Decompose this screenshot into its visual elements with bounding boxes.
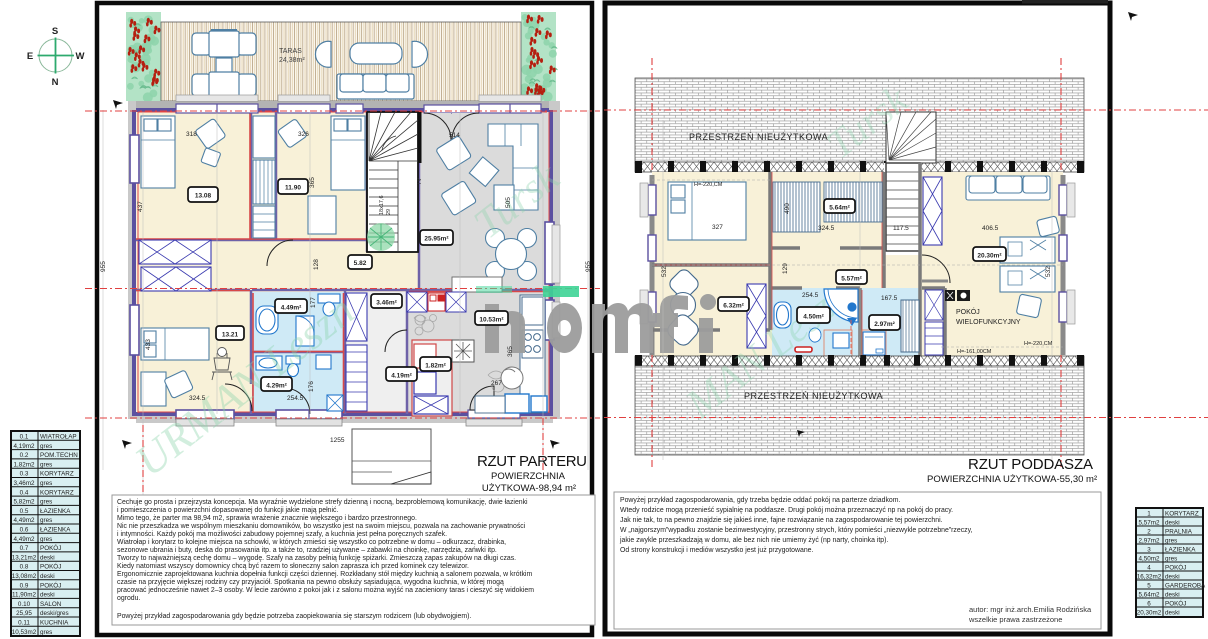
svg-text:1: 1 [1147, 510, 1151, 517]
svg-text:Powyżej przykład zagospodarowa: Powyżej przykład zagospodarowania gdy bę… [117, 613, 471, 620]
svg-text:267: 267 [491, 380, 502, 387]
svg-text:0.9: 0.9 [20, 582, 29, 589]
svg-text:3,46m2: 3,46m2 [13, 480, 35, 487]
svg-text:13,08m2: 13,08m2 [12, 573, 37, 580]
svg-text:18x17,6: 18x17,6 [379, 195, 385, 215]
svg-text:Kiedy natomiast wszyscy domown: Kiedy natomiast wszyscy domownicy chcą b… [117, 563, 469, 570]
svg-text:pracować jednocześnie nawet 2–: pracować jednocześnie nawet 2–3 osoby. W… [117, 587, 534, 594]
svg-text:13.21: 13.21 [222, 332, 239, 339]
svg-text:0.3: 0.3 [20, 471, 29, 478]
svg-text:KORYTARZ: KORYTARZ [40, 489, 74, 496]
svg-text:20.30m²: 20.30m² [977, 253, 1002, 260]
svg-text:4.50m²: 4.50m² [803, 314, 824, 321]
svg-text:1.82m²: 1.82m² [425, 363, 446, 370]
svg-text:327: 327 [712, 224, 723, 231]
svg-text:4.29m²: 4.29m² [266, 383, 287, 390]
svg-text:UŻYTKOWA-98,94 m²: UŻYTKOWA-98,94 m² [482, 483, 576, 494]
svg-text:0.6: 0.6 [20, 527, 29, 534]
svg-text:955: 955 [585, 261, 592, 272]
svg-text:532: 532 [1045, 266, 1052, 277]
svg-text:W: W [76, 51, 85, 62]
svg-text:Wiatrołap i korytarz to kolejn: Wiatrołap i korytarz to kolejne miejsca … [117, 539, 506, 546]
svg-text:5,57m2: 5,57m2 [1138, 519, 1160, 526]
svg-text:10,53m2: 10,53m2 [12, 629, 37, 636]
svg-text:318: 318 [186, 131, 197, 138]
svg-text:TV: TV [417, 178, 423, 185]
svg-text:176: 176 [308, 381, 315, 392]
svg-text:deski: deski [40, 554, 55, 561]
svg-text:POM.TECHN: POM.TECHN [40, 452, 78, 459]
svg-text:deski: deski [1165, 519, 1180, 526]
svg-text:Ergonomicznie zaprojektowana k: Ergonomicznie zaprojektowana kuchnia dop… [117, 571, 532, 578]
svg-text:532: 532 [661, 266, 668, 277]
svg-text:POKÓJ: POKÓJ [40, 562, 61, 571]
svg-text:167.5: 167.5 [881, 295, 898, 302]
svg-text:KORYTARZ: KORYTARZ [40, 471, 74, 478]
svg-text:5.82: 5.82 [354, 260, 367, 267]
svg-text:955: 955 [100, 261, 107, 272]
svg-text:WIELOFUNKCYJNY: WIELOFUNKCYJNY [956, 319, 1021, 326]
svg-text:H=-161,00CM: H=-161,00CM [957, 349, 992, 355]
svg-text:324.5: 324.5 [818, 225, 835, 232]
svg-text:13,21m2: 13,21m2 [12, 554, 37, 561]
svg-text:Wtedy rodzice mogą przenieść s: Wtedy rodzice mogą przenieść sypialnię n… [620, 507, 953, 514]
svg-text:1255: 1255 [330, 437, 345, 444]
svg-text:437: 437 [137, 201, 144, 212]
svg-text:254.5: 254.5 [287, 395, 304, 402]
svg-text:gres: gres [1165, 555, 1177, 562]
svg-text:Tworzy to najważniejszą cechę: Tworzy to najważniejszą cechę domu – wyg… [117, 555, 516, 562]
svg-text:ogrodu.: ogrodu. [117, 595, 140, 602]
svg-text:PRZESTRZEŃ NIEUŻYTKOWA: PRZESTRZEŃ NIEUŻYTKOWA [744, 391, 883, 401]
svg-text:0.5: 0.5 [20, 508, 29, 515]
svg-text:deski: deski [40, 573, 55, 580]
svg-text:177: 177 [310, 297, 317, 308]
svg-text:0.10: 0.10 [18, 601, 31, 608]
svg-text:2: 2 [1147, 528, 1151, 535]
svg-text:11.90: 11.90 [285, 185, 301, 192]
svg-text:5,82m2: 5,82m2 [13, 499, 35, 506]
svg-text:N: N [52, 77, 59, 88]
svg-text:0.11: 0.11 [18, 620, 30, 627]
svg-text:0.7: 0.7 [20, 545, 29, 552]
svg-text:Powyżej przykład zagospodarowa: Powyżej przykład zagospodarowania, gdy t… [620, 497, 900, 504]
svg-text:Jak nie tak, to na pewno znajd: Jak nie tak, to na pewno znajdzie się ja… [620, 517, 943, 524]
svg-text:W „najgorszym”wypadku zostanie: W „najgorszym”wypadku zostanie bezinwest… [620, 527, 973, 534]
svg-text:czasie na przyjęcie większej r: czasie na przyjęcie większej rodziny czy… [117, 579, 504, 586]
svg-text:433: 433 [145, 339, 152, 350]
svg-text:autor: mgr inż.arch.Emilia Rod: autor: mgr inż.arch.Emilia Rodzińska [969, 605, 1092, 614]
svg-text:deski: deski [1165, 573, 1180, 580]
svg-text:514: 514 [449, 132, 460, 139]
svg-text:gres: gres [40, 517, 52, 524]
svg-text:6: 6 [1147, 600, 1151, 607]
svg-text:2,97m2: 2,97m2 [1138, 537, 1160, 544]
svg-text:Cechuje go prosta i przejrzyst: Cechuje go prosta i przejrzysta koncepcj… [117, 499, 528, 506]
svg-text:4,49m2: 4,49m2 [13, 536, 35, 543]
svg-text:gres: gres [40, 461, 52, 468]
svg-text:SALON: SALON [40, 601, 62, 608]
svg-text:deski/gres: deski/gres [40, 610, 69, 617]
svg-text:5.64m²: 5.64m² [829, 205, 850, 212]
svg-text:gres: gres [1165, 537, 1177, 544]
svg-text:20,30m2: 20,30m2 [1137, 609, 1162, 616]
svg-text:16,32m2: 16,32m2 [1137, 573, 1162, 580]
svg-text:365: 365 [507, 346, 514, 357]
svg-text:POKÓJ: POKÓJ [1165, 598, 1186, 607]
svg-text:25.95m²: 25.95m² [424, 236, 449, 243]
svg-text:29: 29 [386, 209, 392, 215]
svg-text:POKÓJ: POKÓJ [40, 543, 61, 552]
svg-text:3: 3 [1147, 546, 1151, 553]
svg-text:406.5: 406.5 [982, 225, 999, 232]
svg-text:ŁAZIENKA: ŁAZIENKA [1165, 546, 1196, 553]
svg-text:5,64m2: 5,64m2 [1138, 591, 1160, 598]
svg-text:POWIERZCHNIA: POWIERZCHNIA [491, 471, 566, 482]
svg-text:POKÓJ: POKÓJ [1165, 562, 1186, 571]
svg-text:sezonowe ubrania i buty, deska: sezonowe ubrania i buty, deska do prasow… [117, 547, 497, 554]
svg-text:324.5: 324.5 [189, 395, 206, 402]
svg-text:gres: gres [40, 536, 52, 543]
svg-text:H=-220,CM: H=-220,CM [694, 182, 723, 188]
svg-text:254.5: 254.5 [802, 292, 819, 299]
svg-text:gres: gres [40, 499, 52, 506]
svg-text:RZUT PODDASZA: RZUT PODDASZA [968, 456, 1093, 473]
svg-text:POWIERZCHNIA UŻYTKOWA-55,30 m²: POWIERZCHNIA UŻYTKOWA-55,30 m² [927, 474, 1097, 485]
svg-text:129: 129 [782, 263, 789, 274]
svg-text:POKÓJ: POKÓJ [40, 580, 61, 589]
svg-text:Nic nie przeszkadza we wspólny: Nic nie przeszkadza we wspólnym mieszkan… [117, 523, 526, 530]
svg-text:deski: deski [1165, 591, 1180, 598]
svg-text:13.08: 13.08 [195, 193, 212, 200]
svg-text:gres: gres [40, 629, 52, 636]
svg-text:H=-220,CM: H=-220,CM [1024, 341, 1053, 347]
svg-text:E: E [27, 51, 33, 62]
svg-text:TARAS: TARAS [279, 48, 302, 55]
svg-text:0.1: 0.1 [20, 434, 29, 441]
svg-text:4.19m²: 4.19m² [391, 373, 412, 380]
svg-text:505: 505 [505, 197, 512, 208]
svg-text:5.57m²: 5.57m² [841, 276, 862, 283]
svg-text:PRALNIA: PRALNIA [1165, 528, 1193, 535]
svg-text:i intymności. Każdy pokój ma m: i intymności. Każdy pokój ma możliwości … [117, 531, 447, 538]
svg-text:117.5: 117.5 [893, 225, 909, 232]
svg-text:Od strony konstrukcji i mediów: Od strony konstrukcji i mediów wszystko … [620, 547, 813, 554]
svg-text:RZUT PARTERU: RZUT PARTERU [477, 453, 587, 470]
svg-text:deski: deski [40, 592, 55, 599]
svg-text:490: 490 [784, 203, 791, 214]
svg-text:Mimo tego, że parter ma 98,94: Mimo tego, że parter ma 98,94 m2, sprawi… [117, 515, 417, 522]
svg-text:24,38m²: 24,38m² [279, 57, 305, 64]
svg-text:GARDEROBA: GARDEROBA [1165, 582, 1206, 589]
svg-text:WIATROŁAP: WIATROŁAP [40, 434, 77, 441]
svg-text:0.2: 0.2 [20, 452, 29, 459]
svg-text:jakie zwykle przeszkadzają w d: jakie zwykle przeszkadzają w domu, ale b… [619, 537, 888, 544]
svg-text:deski: deski [1165, 609, 1180, 616]
svg-text:5: 5 [1147, 582, 1151, 589]
svg-text:128: 128 [313, 259, 320, 270]
svg-text:365: 365 [309, 177, 316, 188]
svg-text:i pomieszczenia o powierzchni: i pomieszczenia o powierzchni dopasowane… [117, 507, 338, 514]
svg-text:3.46m²: 3.46m² [376, 300, 397, 307]
svg-text:11,90m2: 11,90m2 [12, 592, 37, 599]
svg-text:10.53m²: 10.53m² [479, 317, 504, 324]
svg-text:4: 4 [1147, 564, 1151, 571]
svg-text:ŁAZIENKA: ŁAZIENKA [40, 527, 71, 534]
svg-text:ŁAZIENKA: ŁAZIENKA [40, 508, 71, 515]
svg-text:PRZESTRZEŃ NIEUŻYTKOWA: PRZESTRZEŃ NIEUŻYTKOWA [689, 132, 828, 142]
svg-text:wszelkie prawa zastrzeżone: wszelkie prawa zastrzeżone [968, 615, 1062, 624]
svg-text:326: 326 [298, 131, 309, 138]
svg-text:0.4: 0.4 [20, 489, 29, 496]
svg-text:25,95: 25,95 [16, 610, 32, 617]
svg-text:4,50m2: 4,50m2 [1138, 555, 1160, 562]
svg-text:gres: gres [40, 443, 52, 450]
svg-text:KUCHNIA: KUCHNIA [40, 620, 69, 627]
svg-text:POKÓJ: POKÓJ [956, 307, 980, 316]
svg-text:2.97m²: 2.97m² [874, 321, 895, 328]
svg-text:S: S [52, 26, 58, 37]
svg-text:6.32m²: 6.32m² [723, 303, 744, 310]
svg-text:gres: gres [40, 480, 52, 487]
svg-text:1,82m2: 1,82m2 [13, 461, 35, 468]
svg-text:KORYTARZ: KORYTARZ [1165, 510, 1199, 517]
svg-text:4,19m2: 4,19m2 [13, 443, 35, 450]
svg-text:4,49m2: 4,49m2 [13, 517, 35, 524]
svg-text:4.49m²: 4.49m² [281, 305, 302, 312]
svg-text:0.8: 0.8 [20, 564, 29, 571]
